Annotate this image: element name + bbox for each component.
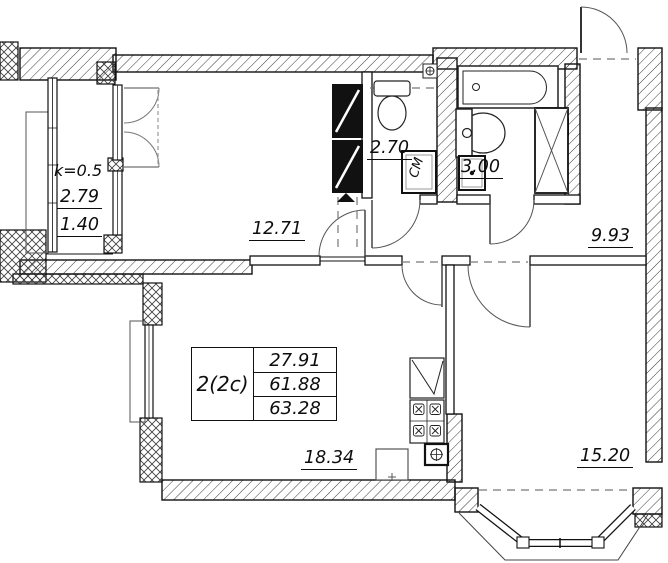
kitchen-area-label: 18.34 [301,449,357,470]
living-room-area-value: 12.71 [249,220,305,241]
wardrobe-units [332,84,363,202]
vent-shaft-cabinet [535,108,568,193]
bedroom-area-label: 15.20 [577,447,633,468]
living-area-value: 27.91 [254,348,336,372]
kitchen-window [130,321,153,422]
balcony-door-window-unit [113,85,122,235]
bathroom-area-label: 3.00 [458,158,503,179]
bedroom-area-value: 15.20 [577,447,633,468]
washbasin [456,109,505,157]
balcony-double-door [124,88,159,167]
balcony-reduced-area-value: 1.40 [57,216,102,237]
bay-window [459,507,649,560]
wc-door [372,200,420,248]
wc-area-label: 2.70 [367,139,412,160]
kitchen-area-value: 18.34 [301,449,357,470]
balcony-coefficient-label: k=0.5 [54,163,102,180]
balcony-reduced-area-label: 1.40 [57,216,102,237]
bathroom-door [490,200,534,244]
kitchen-door [402,265,442,307]
balcony-area-value: 2.79 [57,188,102,209]
bathroom-area-value: 3.00 [458,158,503,179]
living-room-door [319,210,365,257]
floor-plan: k=0.5 2.79 1.40 12.71 2.70 3.00 9.93 18.… [0,0,668,563]
bedroom-door [468,265,530,327]
living-room-area-label: 12.71 [249,220,305,241]
total-area-with-balcony-value: 63.28 [254,396,336,420]
stove [410,400,444,443]
balcony-area-label: 2.79 [57,188,102,209]
fridge [410,358,444,398]
floor-plan-drawing [0,0,668,563]
direction-marker [337,193,355,202]
doorway-threshold [320,257,365,261]
hallway-area-value: 9.93 [588,227,633,248]
wc-area-value: 2.70 [367,139,412,160]
apartment-type-label: 2(2c) [192,348,254,420]
kitchen-sink [425,444,448,465]
kitchen-table [376,449,408,481]
entrance-door [581,7,627,53]
toilet [374,81,410,130]
apartment-spec-table: 2(2c) 27.91 61.88 63.28 [191,347,337,421]
vent-fan-icon [423,64,437,78]
total-area-value: 61.88 [254,372,336,396]
hallway-area-label: 9.93 [588,227,633,248]
